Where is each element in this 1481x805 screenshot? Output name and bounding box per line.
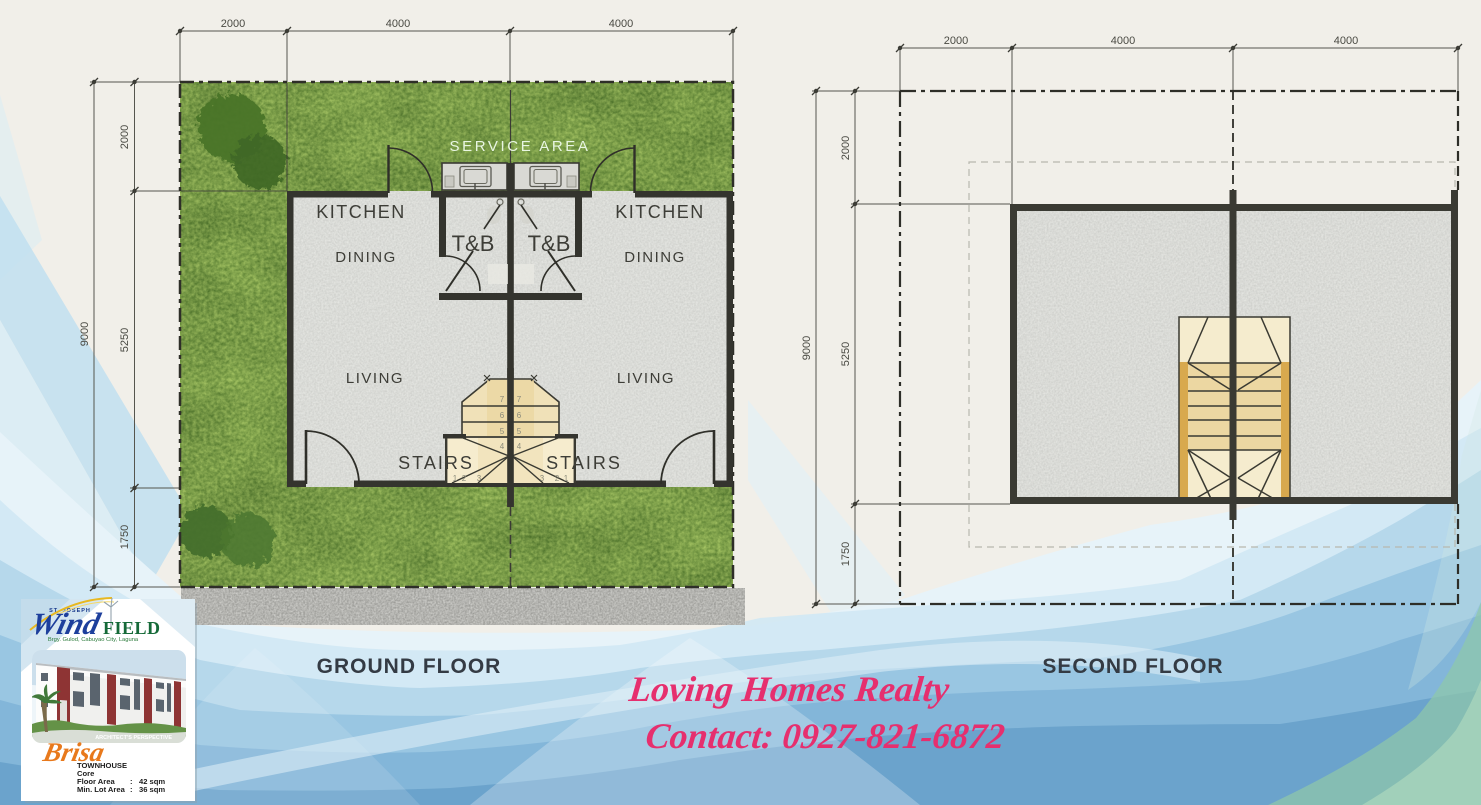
svg-text:GROUND FLOOR: GROUND FLOOR [317,655,502,678]
svg-text:5250: 5250 [119,328,131,352]
svg-text:DINING: DINING [624,249,686,266]
svg-text:KITCHEN: KITCHEN [316,202,406,222]
svg-text:5: 5 [500,427,505,436]
svg-text:4: 4 [517,442,522,451]
svg-text:T&B: T&B [452,231,495,256]
svg-text:36 sqm: 36 sqm [139,785,165,794]
svg-text:KITCHEN: KITCHEN [615,202,705,222]
svg-text:2: 2 [555,474,560,483]
svg-text:4000: 4000 [386,18,410,30]
svg-text:1750: 1750 [840,542,852,566]
svg-text:SERVICE AREA: SERVICE AREA [450,138,591,155]
svg-text:Wind: Wind [27,606,105,640]
svg-text:LIVING: LIVING [346,370,404,387]
svg-text:4000: 4000 [1334,35,1358,47]
svg-text:LIVING: LIVING [617,370,675,387]
svg-text:STAIRS: STAIRS [546,453,622,473]
svg-text:1750: 1750 [119,525,131,549]
svg-text:STAIRS: STAIRS [398,453,474,473]
svg-text:3: 3 [540,474,545,483]
svg-text:9000: 9000 [801,336,813,360]
svg-text:1: 1 [453,474,458,483]
svg-text:2000: 2000 [944,35,968,47]
svg-text:FIELD: FIELD [103,618,161,638]
svg-text:Contact: 0927-821-6872: Contact: 0927-821-6872 [644,716,1007,756]
svg-text:6: 6 [517,411,522,420]
svg-text:3: 3 [477,474,482,483]
svg-text:4000: 4000 [1111,35,1135,47]
svg-text:Min. Lot Area: Min. Lot Area [77,785,126,794]
svg-text:9000: 9000 [79,322,91,346]
svg-text:T&B: T&B [528,231,571,256]
svg-text:7: 7 [500,395,505,404]
svg-text:2: 2 [462,474,467,483]
svg-text:5: 5 [517,427,522,436]
svg-text:Loving Homes Realty: Loving Homes Realty [626,669,952,709]
svg-text:1: 1 [564,474,569,483]
svg-text:6: 6 [500,411,505,420]
svg-text:DINING: DINING [335,249,397,266]
svg-text:5250: 5250 [840,342,852,366]
svg-text:2000: 2000 [119,125,131,149]
svg-text:Brgy. Gulod, Cabuyao City, Lag: Brgy. Gulod, Cabuyao City, Laguna [48,637,139,643]
svg-text::: : [130,785,133,794]
svg-text:4000: 4000 [609,18,633,30]
svg-text:SECOND FLOOR: SECOND FLOOR [1042,655,1223,678]
svg-text:2000: 2000 [221,18,245,30]
svg-text:4: 4 [500,442,505,451]
svg-text:7: 7 [517,395,522,404]
svg-text:2000: 2000 [840,136,852,160]
